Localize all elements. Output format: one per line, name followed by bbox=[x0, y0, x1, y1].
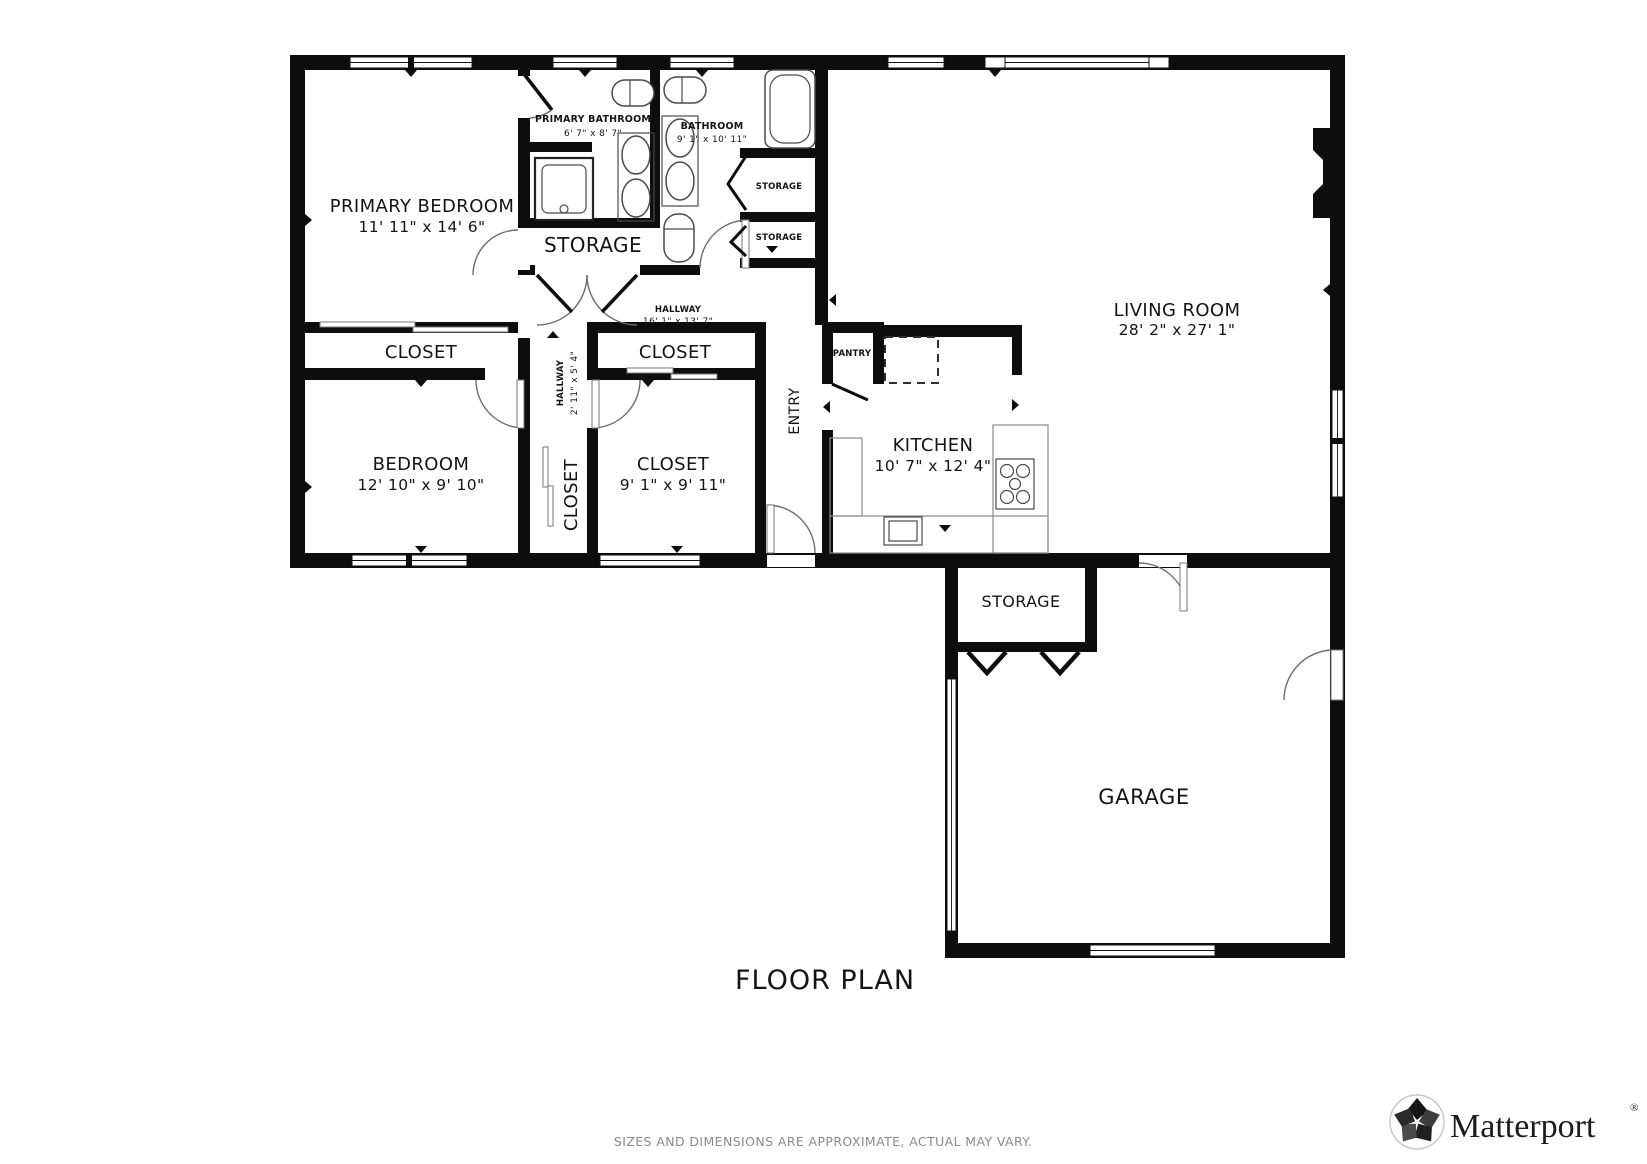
toilet bbox=[612, 80, 654, 106]
svg-text:2' 11" x 5' 4": 2' 11" x 5' 4" bbox=[570, 351, 580, 415]
room-label-garage: GARAGE bbox=[1098, 785, 1190, 809]
page-title: FLOOR PLAN bbox=[735, 965, 915, 996]
svg-text:HALLWAY: HALLWAY bbox=[655, 305, 702, 315]
room-label-primary-bedroom: PRIMARY BEDROOM 11' 11" x 14' 6" bbox=[330, 196, 515, 236]
door bbox=[473, 230, 530, 275]
matterport-logo: Matterport ® bbox=[1390, 1095, 1638, 1149]
door bbox=[1139, 555, 1187, 611]
kitchen-counter bbox=[830, 438, 862, 516]
toilet bbox=[664, 214, 694, 262]
room-label-pantry: PANTRY bbox=[833, 349, 872, 359]
svg-text:9' 1" x 10' 11": 9' 1" x 10' 11" bbox=[677, 135, 747, 145]
stove bbox=[996, 459, 1034, 509]
room-label-kitchen: KITCHEN 10' 7" x 12' 4" bbox=[875, 435, 992, 475]
disclaimer-text: SIZES AND DIMENSIONS ARE APPROXIMATE, AC… bbox=[614, 1134, 1032, 1149]
fixtures-layer bbox=[535, 70, 1048, 553]
svg-text:16' 1" x 13' 7": 16' 1" x 13' 7" bbox=[643, 317, 713, 327]
room-label-closet-west: CLOSET bbox=[385, 342, 458, 363]
kitchen-peninsula bbox=[993, 425, 1048, 553]
front-door bbox=[767, 505, 815, 567]
accordion-door bbox=[1041, 652, 1079, 673]
toilet bbox=[664, 77, 706, 103]
door bbox=[518, 74, 552, 118]
door bbox=[592, 380, 640, 428]
registered-mark: ® bbox=[1630, 1102, 1638, 1114]
svg-text:PRIMARY BEDROOM: PRIMARY BEDROOM bbox=[330, 196, 515, 217]
window-slider bbox=[985, 57, 1169, 68]
window bbox=[1332, 390, 1343, 497]
room-label-closet-center: CLOSET bbox=[639, 342, 712, 363]
window bbox=[600, 555, 700, 566]
kitchen-counter bbox=[830, 516, 1048, 553]
window bbox=[670, 57, 734, 68]
room-label-bedroom: BEDROOM 12' 10" x 9' 10" bbox=[357, 454, 484, 494]
room-label-hallway-west: HALLWAY 2' 11" x 5' 4" bbox=[556, 351, 580, 415]
bathtub bbox=[765, 70, 815, 148]
svg-text:CLOSET: CLOSET bbox=[637, 454, 710, 475]
kitchen-sink bbox=[884, 517, 922, 545]
window bbox=[553, 57, 617, 68]
matterport-wordmark: Matterport bbox=[1450, 1108, 1596, 1145]
svg-text:12' 10" x 9' 10": 12' 10" x 9' 10" bbox=[357, 476, 484, 494]
room-label-living-room: LIVING ROOM 28' 2" x 27' 1" bbox=[1114, 300, 1241, 339]
refrigerator-dashed bbox=[885, 337, 938, 383]
room-label-storage-garage: STORAGE bbox=[982, 592, 1061, 611]
accordion-door bbox=[968, 652, 1006, 673]
window bbox=[352, 555, 467, 566]
double-door bbox=[537, 275, 637, 325]
walls-layer bbox=[290, 55, 1345, 958]
floor-plan-canvas: PRIMARY BEDROOM 11' 11" x 14' 6" PRIMARY… bbox=[0, 0, 1647, 1164]
svg-text:28' 2" x 27' 1": 28' 2" x 27' 1" bbox=[1119, 321, 1236, 339]
room-label-storage-small-bottom: STORAGE bbox=[756, 233, 802, 243]
svg-text:HALLWAY: HALLWAY bbox=[556, 359, 566, 406]
room-label-storage-hall: STORAGE bbox=[544, 233, 642, 257]
svg-text:LIVING ROOM: LIVING ROOM bbox=[1114, 300, 1241, 321]
svg-text:9' 1" x 9' 11": 9' 1" x 9' 11" bbox=[620, 476, 727, 494]
svg-text:11' 11" x 14' 6": 11' 11" x 14' 6" bbox=[358, 218, 485, 236]
shower bbox=[535, 158, 593, 220]
room-label-hallway-main: HALLWAY 16' 1" x 13' 7" bbox=[643, 305, 713, 327]
vanity-sinks bbox=[618, 133, 654, 221]
matterport-pinwheel-icon bbox=[1390, 1095, 1444, 1149]
doors-layer bbox=[320, 74, 1343, 700]
fireplace bbox=[1313, 128, 1330, 218]
svg-text:6' 7" x 8' 7": 6' 7" x 8' 7" bbox=[564, 129, 622, 139]
svg-text:PRIMARY BATHROOM: PRIMARY BATHROOM bbox=[535, 114, 651, 125]
window bbox=[888, 57, 944, 68]
sliding-door bbox=[543, 447, 553, 526]
window bbox=[1090, 945, 1215, 956]
room-label-primary-bathroom: PRIMARY BATHROOM 6' 7" x 8' 7" bbox=[535, 114, 651, 139]
svg-text:BEDROOM: BEDROOM bbox=[373, 454, 470, 475]
window bbox=[350, 57, 472, 68]
bifold-door bbox=[728, 156, 746, 210]
room-label-closet-vertical: CLOSET bbox=[561, 458, 582, 531]
floor-plan-page: PRIMARY BEDROOM 11' 11" x 14' 6" PRIMARY… bbox=[0, 0, 1647, 1164]
room-label-closet-room: CLOSET 9' 1" x 9' 11" bbox=[620, 454, 727, 494]
accordion-door bbox=[832, 384, 868, 400]
svg-text:KITCHEN: KITCHEN bbox=[893, 435, 974, 456]
room-label-entry: ENTRY bbox=[787, 387, 803, 434]
svg-text:10' 7" x 12' 4": 10' 7" x 12' 4" bbox=[875, 457, 992, 475]
room-label-storage-small-top: STORAGE bbox=[756, 182, 802, 192]
door bbox=[1284, 650, 1343, 700]
windows-layer bbox=[350, 57, 1343, 956]
garage-side-window bbox=[946, 673, 957, 937]
svg-text:BATHROOM: BATHROOM bbox=[681, 121, 744, 132]
door bbox=[700, 220, 749, 268]
